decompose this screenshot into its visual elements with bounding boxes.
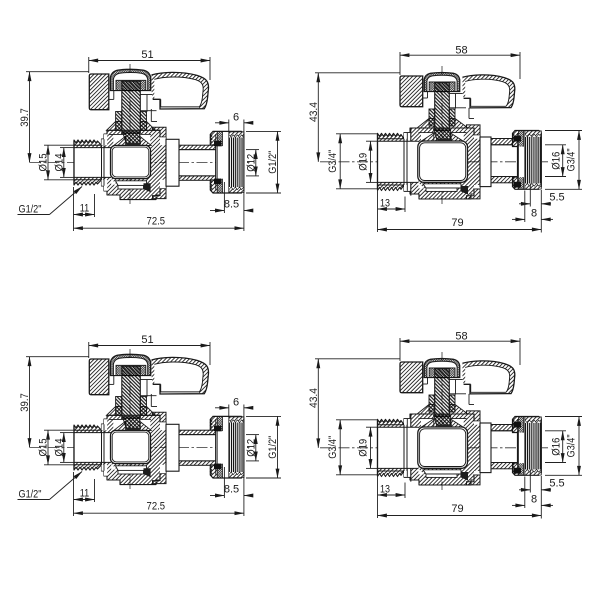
svg-text:11: 11 <box>80 203 90 215</box>
svg-text:Ø19: Ø19 <box>358 153 370 171</box>
svg-text:Ø15: Ø15 <box>38 154 50 172</box>
svg-text:G3/4": G3/4" <box>566 148 578 171</box>
svg-text:13: 13 <box>380 198 390 210</box>
svg-text:8: 8 <box>531 208 537 220</box>
svg-text:G1/2": G1/2" <box>267 151 279 174</box>
svg-text:72.5: 72.5 <box>147 216 166 228</box>
svg-text:5.5: 5.5 <box>549 192 564 204</box>
svg-text:Ø12: Ø12 <box>245 154 257 172</box>
svg-text:G1/2": G1/2" <box>19 204 42 216</box>
svg-text:79: 79 <box>451 217 463 229</box>
svg-text:Ø16: Ø16 <box>551 152 563 170</box>
svg-text:51: 51 <box>141 49 153 61</box>
svg-text:G3/4": G3/4" <box>327 150 339 173</box>
svg-text:6: 6 <box>233 112 239 124</box>
svg-text:43.4: 43.4 <box>308 102 320 122</box>
svg-text:8.5: 8.5 <box>224 199 239 211</box>
svg-text:39.7: 39.7 <box>19 108 31 127</box>
svg-text:58: 58 <box>455 44 467 56</box>
svg-text:Ø14: Ø14 <box>53 154 65 172</box>
